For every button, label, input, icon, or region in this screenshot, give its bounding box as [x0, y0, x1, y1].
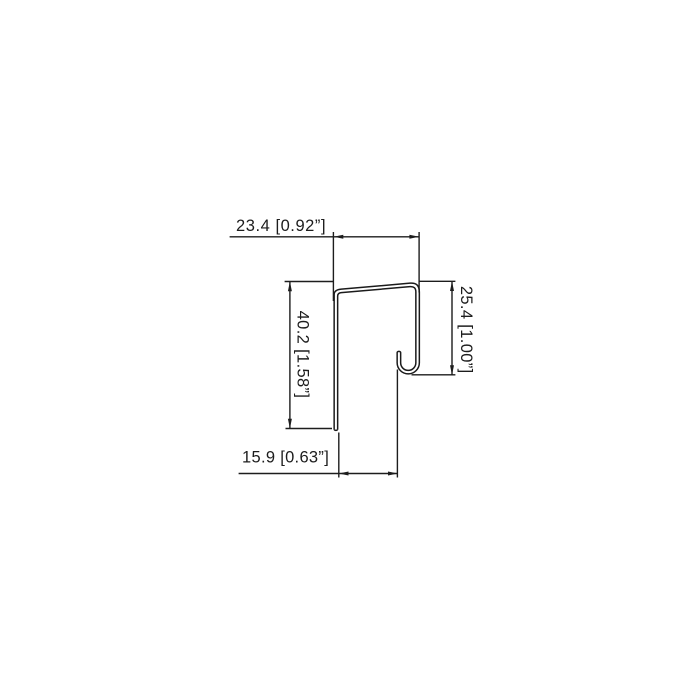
svg-text:40.2 [1.58”]: 40.2 [1.58”]: [294, 311, 312, 399]
svg-text:15.9 [0.63”]: 15.9 [0.63”]: [242, 448, 329, 466]
svg-text:23.4 [0.92”]: 23.4 [0.92”]: [236, 217, 326, 235]
svg-text:25.4 [1.00”]: 25.4 [1.00”]: [457, 286, 475, 374]
